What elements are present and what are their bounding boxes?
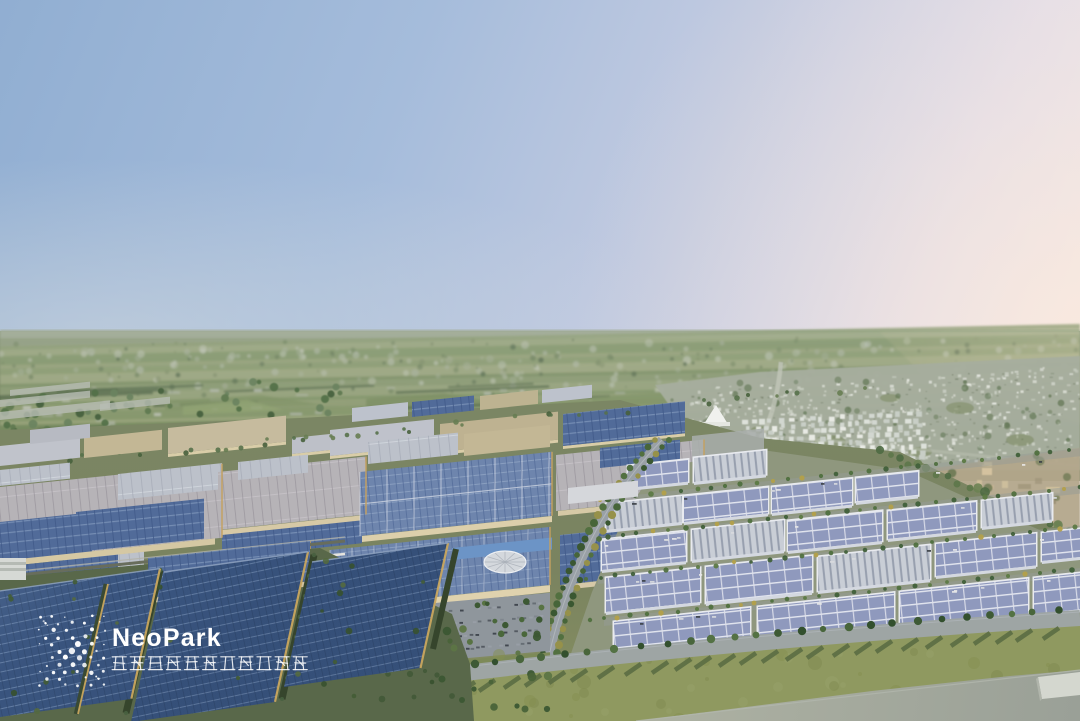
svg-text:NeoPark: NeoPark: [112, 624, 222, 652]
